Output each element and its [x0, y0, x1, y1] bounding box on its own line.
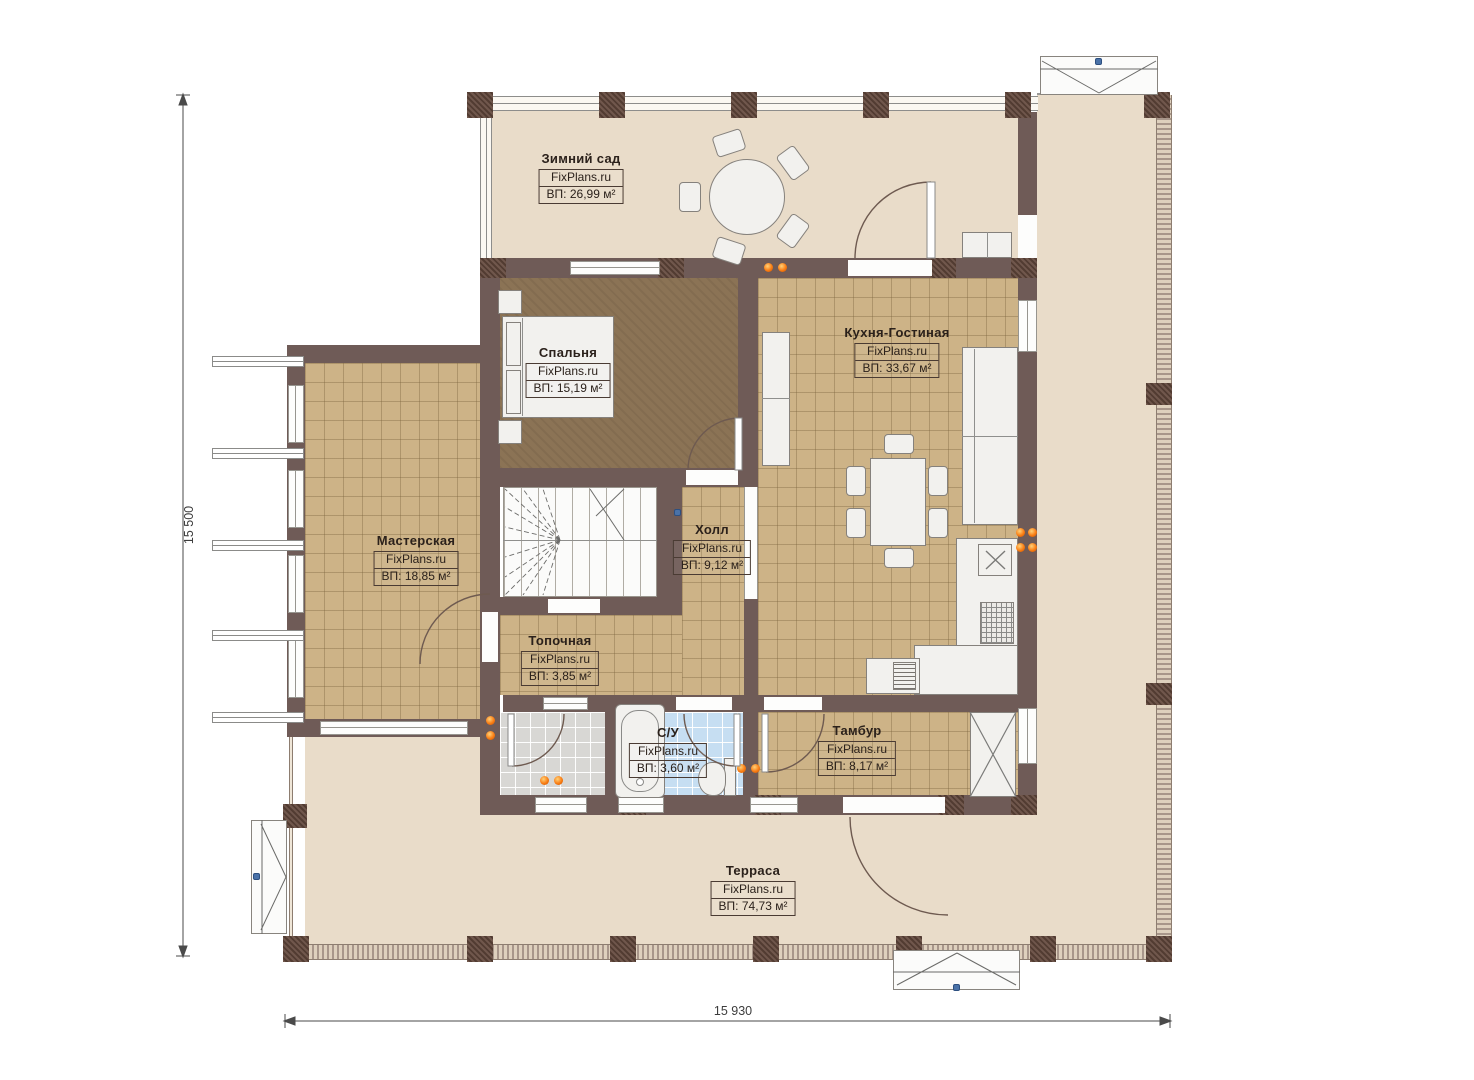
room-label-workshop: Мастерская FixPlans.ru ВП: 18,85 м²	[374, 534, 459, 586]
room-info-box: FixPlans.ru ВП: 74,73 м²	[711, 881, 796, 916]
watermark: FixPlans.ru	[375, 552, 458, 569]
sofa-divider	[962, 436, 1018, 437]
room-area: ВП: 15,19 м²	[527, 381, 610, 397]
chair	[846, 508, 866, 538]
dimension-label-left: 15 500	[182, 506, 196, 544]
nightstand	[498, 290, 522, 314]
pillar	[1005, 92, 1031, 118]
dining-table	[870, 458, 926, 546]
room-name: Кухня-Гостиная	[844, 326, 949, 341]
chair	[884, 548, 914, 568]
room-label-kitchen-living: Кухня-Гостиная FixPlans.ru ВП: 33,67 м²	[844, 326, 949, 378]
room-label-bedroom: Спальня FixPlans.ru ВП: 15,19 м²	[526, 346, 611, 398]
pillar	[283, 936, 309, 962]
watermark: FixPlans.ru	[540, 170, 623, 187]
radiator-marker	[778, 263, 787, 272]
pillar	[1146, 383, 1172, 405]
tall-cabinet	[762, 332, 790, 466]
room-info-box: FixPlans.ru ВП: 3,85 м²	[521, 651, 599, 686]
pillar	[1144, 92, 1170, 118]
pillar	[1030, 936, 1056, 962]
terrace-floor-left	[305, 737, 480, 948]
gray-room-floor	[500, 712, 605, 797]
pillar	[1146, 683, 1172, 705]
stove	[980, 602, 1014, 644]
door-opening	[764, 697, 822, 710]
pillar	[731, 92, 757, 118]
round-table	[709, 159, 785, 235]
chair	[679, 182, 701, 212]
pillar	[658, 258, 684, 278]
cabinet-line	[762, 398, 790, 399]
radiator-marker	[751, 764, 760, 773]
terrace-floor-right	[1037, 95, 1156, 948]
stair-mid-line	[503, 540, 657, 541]
pillar	[467, 936, 493, 962]
room-label-winter-garden: Зимний сад FixPlans.ru ВП: 26,99 м²	[539, 152, 624, 204]
room-name: Холл	[695, 523, 729, 538]
pillar	[467, 92, 493, 118]
room-area: ВП: 74,73 м²	[712, 899, 795, 915]
level-marker	[253, 873, 260, 880]
room-name: Мастерская	[377, 534, 456, 549]
wall	[287, 345, 480, 363]
dimension-label-bottom: 15 930	[714, 1004, 752, 1018]
window	[288, 640, 304, 698]
level-marker	[674, 509, 681, 516]
room-name: Тамбур	[833, 724, 882, 739]
pillar	[610, 936, 636, 962]
chair	[846, 466, 866, 496]
door-opening	[548, 599, 600, 613]
wall	[743, 712, 758, 797]
wardrobe	[970, 712, 1016, 797]
radiator-marker	[1028, 528, 1037, 537]
watermark: FixPlans.ru	[630, 744, 706, 761]
door-opening	[848, 260, 932, 276]
pillar	[480, 258, 506, 278]
room-area: ВП: 26,99 м²	[540, 187, 623, 203]
pillow	[506, 370, 521, 414]
radiator-marker	[486, 716, 495, 725]
winter-garden-glazing-left	[480, 96, 492, 258]
chair	[884, 434, 914, 454]
watermark: FixPlans.ru	[522, 652, 598, 669]
room-label-vestibule: Тамбур FixPlans.ru ВП: 8,17 м²	[818, 724, 896, 776]
watermark: FixPlans.ru	[712, 882, 795, 899]
kitchen-sink	[978, 544, 1012, 576]
kitchen-counter-bottom	[914, 645, 1018, 695]
pillar	[1146, 936, 1172, 962]
room-name: Топочная	[528, 634, 591, 649]
radiator-marker	[1028, 543, 1037, 552]
room-name: Спальня	[539, 346, 597, 361]
wall	[738, 278, 758, 468]
room-name: С/У	[657, 726, 679, 741]
window	[570, 261, 660, 275]
radiator-marker	[554, 776, 563, 785]
radiator-marker	[1016, 543, 1025, 552]
room-area: ВП: 18,85 м²	[375, 569, 458, 585]
room-area: ВП: 3,85 м²	[522, 669, 598, 685]
room-info-box: FixPlans.ru ВП: 18,85 м²	[374, 551, 459, 586]
radiator-marker	[486, 731, 495, 740]
awning	[212, 356, 304, 367]
watermark: FixPlans.ru	[674, 541, 750, 558]
terrace-railing-right	[1156, 95, 1172, 960]
room-info-box: FixPlans.ru ВП: 8,17 м²	[818, 741, 896, 776]
level-marker	[1095, 58, 1102, 65]
pillow	[506, 322, 521, 366]
door-opening	[1018, 215, 1037, 258]
window	[618, 797, 664, 813]
nightstand	[498, 420, 522, 444]
room-label-boiler: Топочная FixPlans.ru ВП: 3,85 м²	[521, 634, 599, 686]
pillar	[599, 92, 625, 118]
window	[535, 797, 587, 813]
radiator-marker	[1016, 528, 1025, 537]
radiator-marker	[540, 776, 549, 785]
watermark: FixPlans.ru	[527, 364, 610, 381]
terrace-edge-left	[289, 737, 293, 944]
awning	[212, 540, 304, 551]
watermark: FixPlans.ru	[856, 344, 939, 361]
awning	[212, 630, 304, 641]
drainer	[893, 662, 916, 690]
level-marker	[953, 984, 960, 991]
room-info-box: FixPlans.ru ВП: 15,19 м²	[526, 363, 611, 398]
radiator-marker	[764, 263, 773, 272]
pillar	[1011, 795, 1037, 815]
pillar	[930, 258, 956, 278]
room-info-box: FixPlans.ru ВП: 26,99 м²	[539, 169, 624, 204]
winter-garden-glazing-top	[480, 96, 1038, 111]
chair	[928, 508, 948, 538]
room-name: Зимний сад	[541, 152, 620, 167]
pillar	[753, 936, 779, 962]
awning	[212, 712, 304, 723]
bed-headboard-line	[522, 318, 523, 416]
room-label-bathroom: С/У FixPlans.ru ВП: 3,60 м²	[629, 726, 707, 778]
bathtub-drain	[636, 778, 644, 786]
room-area: ВП: 33,67 м²	[856, 361, 939, 377]
watermark: FixPlans.ru	[819, 742, 895, 759]
window	[543, 697, 588, 710]
pillar	[1011, 258, 1037, 278]
room-name: Терраса	[726, 864, 780, 879]
cabinet-line	[987, 232, 988, 258]
window	[320, 721, 468, 735]
room-area: ВП: 8,17 м²	[819, 759, 895, 775]
room-label-hall: Холл FixPlans.ru ВП: 9,12 м²	[673, 523, 751, 575]
room-info-box: FixPlans.ru ВП: 9,12 м²	[673, 540, 751, 575]
window	[1018, 708, 1037, 764]
window	[288, 555, 304, 613]
staircase	[503, 487, 657, 597]
door-opening	[482, 612, 498, 662]
room-info-box: FixPlans.ru ВП: 33,67 м²	[855, 343, 940, 378]
window	[750, 797, 798, 813]
floor-plan-canvas: 15 500 15 930 Зимний сад FixPlans.ru ВП:…	[0, 0, 1474, 1080]
window	[1018, 300, 1037, 352]
radiator-marker	[737, 764, 746, 773]
room-area: ВП: 9,12 м²	[674, 558, 750, 574]
pillar	[863, 92, 889, 118]
door-opening	[843, 797, 945, 813]
door-opening	[676, 697, 732, 710]
door-opening	[686, 470, 738, 485]
window	[288, 470, 304, 528]
chair	[928, 466, 948, 496]
room-area: ВП: 3,60 м²	[630, 761, 706, 777]
awning	[212, 448, 304, 459]
window	[288, 385, 304, 443]
room-info-box: FixPlans.ru ВП: 3,60 м²	[629, 743, 707, 778]
wall	[744, 599, 758, 695]
room-label-terrace: Терраса FixPlans.ru ВП: 74,73 м²	[711, 864, 796, 916]
